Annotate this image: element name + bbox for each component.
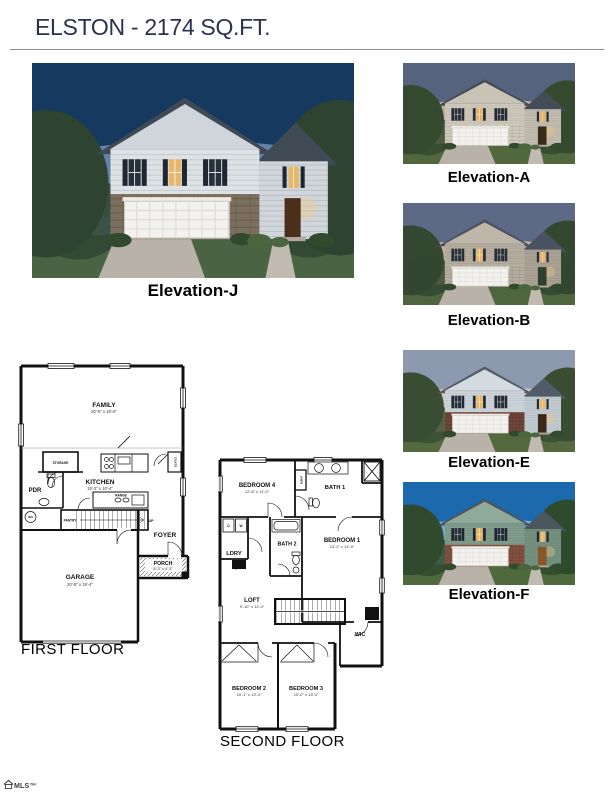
elevation-j-photo: [32, 63, 354, 278]
first-floor-caption: FIRST FLOOR: [21, 641, 124, 658]
room-dim-bedroom4: 12'-8" x 11'-0": [245, 489, 270, 494]
room-dim-bedroom3: 10'-0" x 13'-4": [294, 692, 319, 697]
bath1-shower: [364, 462, 380, 481]
mls-logo: MLS™: [3, 779, 37, 790]
title-divider: [10, 49, 604, 50]
room-dim-porch: 8'-3" x 4'-3": [153, 567, 173, 571]
room-label-wic: WIC: [355, 632, 366, 638]
room-dim-kitchen: 15'-2" x 10'-4": [87, 486, 113, 491]
room-label-linen: LINEN: [300, 476, 304, 484]
porch-post: [182, 572, 188, 578]
elevation-f-photo: [403, 482, 575, 585]
dryer-label: D: [227, 524, 230, 528]
second-floor-caption: SECOND FLOOR: [220, 733, 345, 750]
flyer-page: ELSTON - 2174 SQ.FT. Elevation-J Elevati…: [0, 0, 614, 800]
water-heater-label: WH: [28, 515, 33, 519]
room-dim-family: 20'-5" x 15'-0": [91, 409, 117, 414]
room-label-family: FAMILY: [92, 402, 116, 409]
elevation-j-label: Elevation-J: [32, 281, 354, 301]
room-label-pdr: PDR: [29, 488, 42, 494]
elevation-a-photo: [403, 63, 575, 164]
room-label-ldry: LDRY: [226, 551, 242, 557]
stairs-up-label: UP: [149, 519, 155, 523]
room-label-foyer: FOYER: [154, 532, 177, 539]
first-floor-windows: [19, 364, 186, 497]
mls-logo-text: MLS™: [14, 783, 37, 790]
elevation-e-house-illustration: [403, 350, 575, 452]
second-floor-plan: BEDROOM 4 12'-8" x 11'-0" BATH 1 LINEN B…: [218, 456, 386, 732]
room-label-storage: STORAGE: [53, 461, 69, 465]
room-label-pantry: PANTRY: [64, 519, 78, 523]
washer-label: W: [239, 524, 242, 528]
room-dim-loft: 9'-10" x 12'-0": [240, 604, 265, 609]
elevation-b-label: Elevation-B: [403, 312, 575, 329]
room-label-bath1: BATH 1: [325, 485, 346, 491]
mls-house-icon: [3, 779, 14, 790]
room-dim-garage: 20'-5" x 19'-4": [67, 582, 93, 587]
room-label-kitchen: KITCHEN: [86, 479, 115, 486]
elevation-b-photo: [403, 203, 575, 305]
elevation-j-house-illustration: [32, 63, 354, 278]
page-title: ELSTON - 2174 SQ.FT.: [35, 14, 270, 41]
elevation-b-house-illustration: [403, 203, 575, 305]
first-floor-plan: FAMILY 20'-5" x 15'-0" STORAGE PDR KITCH…: [18, 358, 210, 648]
bedroom-closets: [220, 643, 314, 662]
room-label-garage: GARAGE: [66, 574, 95, 581]
elevation-f-label: Elevation-F: [403, 586, 575, 603]
room-label-range: RANGE: [115, 494, 127, 498]
mechanical-chase: [365, 607, 379, 620]
elevation-a-house-illustration: [403, 63, 575, 164]
elevation-f-house-illustration: [403, 482, 575, 585]
room-dim-bedroom1: 13'-2" x 14'-9": [330, 544, 355, 549]
elevation-a-label: Elevation-A: [403, 169, 575, 186]
room-dim-bedroom2: 10'-1" x 13'-4": [237, 692, 262, 697]
elevation-e-label: Elevation-E: [403, 454, 575, 471]
loft-closet-block: [232, 560, 246, 569]
room-label-coats: COATS: [174, 457, 178, 467]
elevation-e-photo: [403, 350, 575, 452]
room-label-bath2: BATH 2: [277, 542, 296, 548]
